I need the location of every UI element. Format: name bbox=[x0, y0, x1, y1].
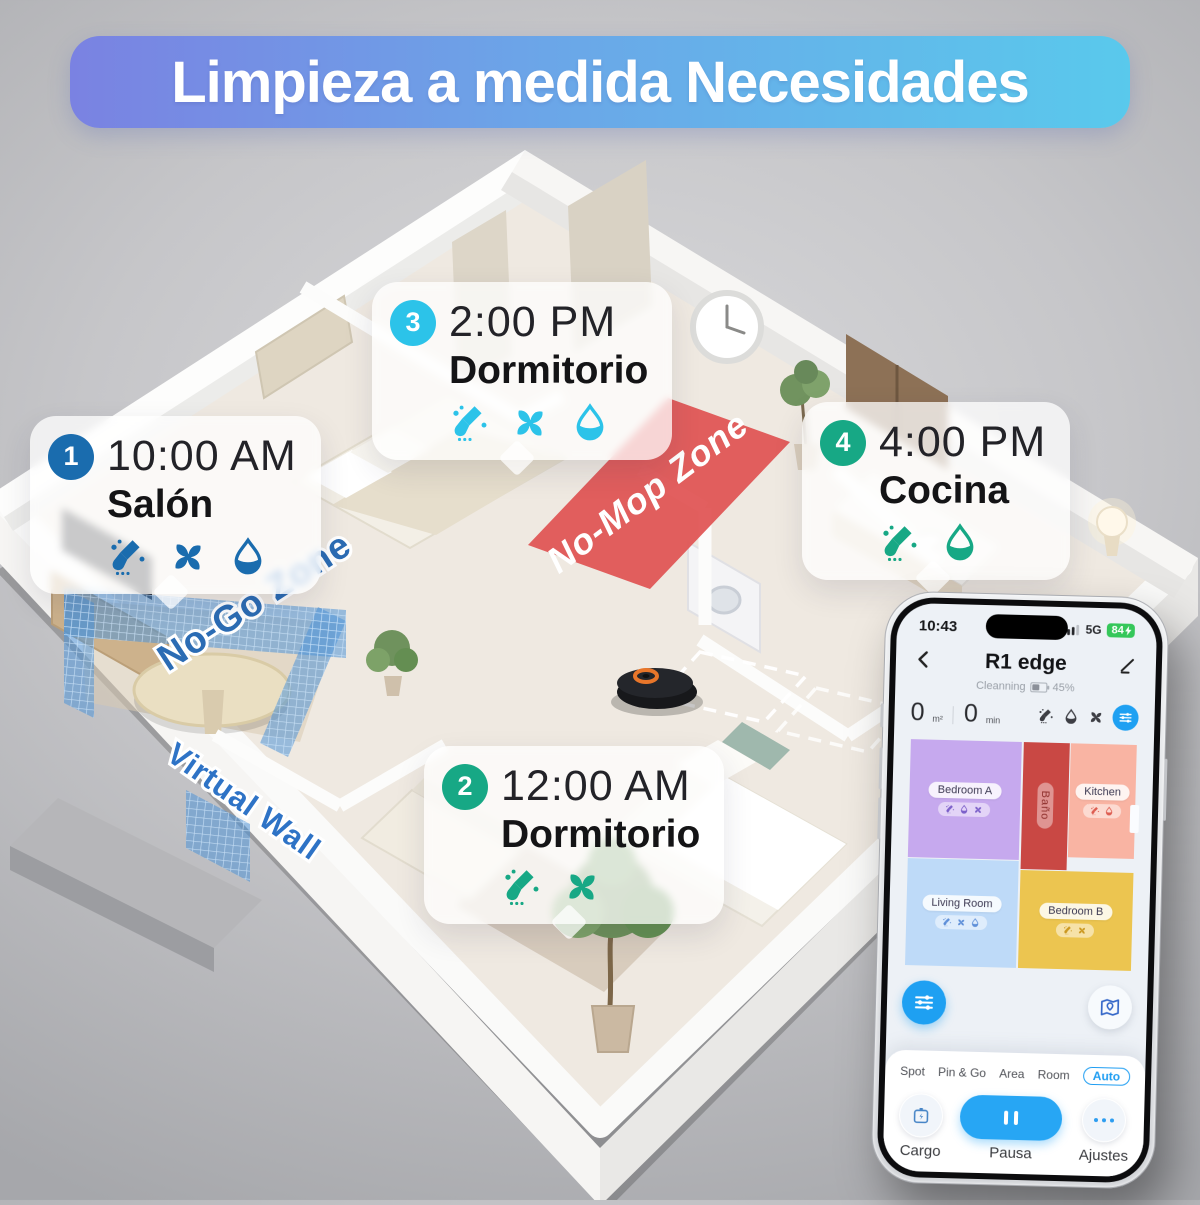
title-banner: Limpieza a medida Necesidades bbox=[70, 36, 1130, 128]
control-bar: Cargo Pausa Ajustes bbox=[898, 1093, 1130, 1165]
status-time: 10:43 bbox=[919, 617, 958, 635]
phone-screen: 10:43 5G 84 R1 edge Cleanning 45% 0 bbox=[883, 603, 1158, 1178]
tab-room[interactable]: Room bbox=[1037, 1068, 1069, 1083]
time-unit: min bbox=[986, 715, 1001, 727]
map-room-living[interactable]: Living Room bbox=[905, 858, 1019, 968]
back-button[interactable] bbox=[912, 647, 937, 672]
mop-icon bbox=[1063, 925, 1073, 935]
callout-dormitorio-am: 2 12:00 AM Dormitorio bbox=[424, 746, 724, 924]
edit-button[interactable] bbox=[1116, 654, 1139, 677]
callout-time: 2:00 PM bbox=[449, 298, 616, 347]
page-title: Limpieza a medida Necesidades bbox=[171, 49, 1028, 116]
fan-icon bbox=[509, 402, 551, 444]
map-icon bbox=[1098, 995, 1123, 1020]
sliders-icon bbox=[912, 990, 937, 1015]
mute-switch bbox=[880, 703, 884, 727]
cleaning-map: Bedroom A Baño Kitchen Living Room bbox=[905, 739, 1137, 971]
dynamic-island bbox=[986, 614, 1069, 640]
callout-time: 10:00 AM bbox=[107, 432, 297, 481]
mop-icon bbox=[1037, 707, 1054, 724]
callout-time: 12:00 AM bbox=[501, 762, 691, 811]
drop-icon bbox=[939, 522, 981, 564]
settings-button[interactable]: Ajustes bbox=[1079, 1098, 1130, 1165]
callout-dormitorio-pm: 3 2:00 PM Dormitorio bbox=[372, 282, 672, 460]
tab-pin-go[interactable]: Pin & Go bbox=[938, 1065, 986, 1080]
divider bbox=[953, 706, 954, 724]
fan-icon bbox=[167, 536, 209, 578]
fan-icon bbox=[1077, 925, 1087, 935]
tab-spot[interactable]: Spot bbox=[900, 1064, 925, 1079]
callout-cocina: 4 4:00 PM Cocina bbox=[802, 402, 1070, 580]
battery-badge: 84 bbox=[1106, 623, 1135, 638]
callout-number-badge: 1 bbox=[48, 434, 94, 480]
drop-icon bbox=[970, 918, 980, 928]
mop-icon bbox=[945, 804, 955, 814]
device-title: R1 edge bbox=[985, 650, 1067, 676]
callout-number-badge: 2 bbox=[442, 764, 488, 810]
room-label: Kitchen bbox=[1075, 783, 1130, 800]
network-label: 5G bbox=[1085, 623, 1101, 637]
charge-label: Cargo bbox=[899, 1142, 940, 1160]
charge-icon bbox=[910, 1104, 933, 1127]
map-room-bedroom-b[interactable]: Bedroom B bbox=[1018, 870, 1134, 971]
drop-icon bbox=[1062, 708, 1079, 725]
robot-battery-icon bbox=[1030, 682, 1047, 692]
tab-area[interactable]: Area bbox=[999, 1067, 1025, 1082]
pause-icon bbox=[960, 1095, 1063, 1142]
mop-icon bbox=[501, 866, 543, 908]
nav-bar: R1 edge bbox=[896, 644, 1157, 683]
room-label: Baño bbox=[1036, 783, 1053, 829]
map-room-bano[interactable]: Baño bbox=[1020, 742, 1069, 870]
mop-icon bbox=[1090, 806, 1100, 816]
callout-room: Dormitorio bbox=[501, 815, 700, 854]
callout-number-badge: 4 bbox=[820, 420, 866, 466]
room-label: Bedroom A bbox=[929, 781, 1002, 799]
state-battery: 45% bbox=[1052, 682, 1074, 695]
map-room-bedroom-a[interactable]: Bedroom A bbox=[908, 739, 1022, 859]
status-bar: 10:43 5G 84 bbox=[897, 612, 1158, 645]
fan-icon bbox=[1087, 708, 1104, 725]
stats-row: 0 m² 0 min bbox=[894, 699, 1155, 732]
area-unit: m² bbox=[932, 713, 943, 725]
phone-mockup: 10:43 5G 84 R1 edge Cleanning 45% 0 bbox=[870, 590, 1169, 1189]
bottom-sheet: Spot Pin & Go Area Room Auto Cargo Pausa… bbox=[883, 1050, 1146, 1178]
pause-label: Pausa bbox=[989, 1144, 1032, 1162]
drop-icon bbox=[227, 536, 269, 578]
callout-salon: 1 10:00 AM Salón bbox=[30, 416, 321, 594]
volume-down-button bbox=[877, 797, 881, 839]
fan-icon bbox=[973, 805, 983, 815]
tab-auto-active[interactable]: Auto bbox=[1083, 1067, 1131, 1086]
state-label: Cleanning bbox=[976, 680, 1026, 693]
map-room-kitchen[interactable]: Kitchen bbox=[1068, 743, 1137, 859]
mop-icon bbox=[879, 522, 921, 564]
callout-room: Salón bbox=[107, 485, 297, 524]
volume-up-button bbox=[879, 747, 883, 789]
map-manage-button[interactable] bbox=[1087, 985, 1132, 1030]
drop-icon bbox=[569, 402, 611, 444]
map-door-notch bbox=[1130, 805, 1140, 833]
fan-icon bbox=[956, 918, 966, 928]
settings-label: Ajustes bbox=[1079, 1147, 1129, 1165]
mop-icon bbox=[107, 536, 149, 578]
area-value: 0 bbox=[910, 700, 925, 725]
ellipsis-icon bbox=[1094, 1118, 1114, 1123]
drop-icon bbox=[1104, 806, 1114, 816]
mode-tabs: Spot Pin & Go Area Room Auto bbox=[900, 1062, 1130, 1086]
time-value: 0 bbox=[964, 701, 979, 726]
drop-icon bbox=[959, 804, 969, 814]
callout-room: Cocina bbox=[879, 471, 1046, 510]
battery-percent: 84 bbox=[1111, 624, 1124, 636]
sliders-icon bbox=[1117, 709, 1133, 725]
mop-icon bbox=[449, 402, 491, 444]
callout-time: 4:00 PM bbox=[879, 418, 1046, 467]
mop-icon bbox=[942, 917, 952, 927]
clean-settings-button[interactable] bbox=[1112, 704, 1139, 731]
room-label: Living Room bbox=[922, 895, 1002, 913]
charge-button[interactable]: Cargo bbox=[898, 1093, 944, 1160]
suction-settings-button[interactable] bbox=[901, 980, 946, 1025]
charging-bolt-icon bbox=[1125, 626, 1132, 636]
pause-button[interactable]: Pausa bbox=[959, 1095, 1063, 1164]
fan-icon bbox=[561, 866, 603, 908]
map-toolbar bbox=[886, 980, 1147, 1031]
callout-room: Dormitorio bbox=[449, 351, 648, 390]
room-label: Bedroom B bbox=[1039, 902, 1112, 920]
callout-number-badge: 3 bbox=[390, 300, 436, 346]
